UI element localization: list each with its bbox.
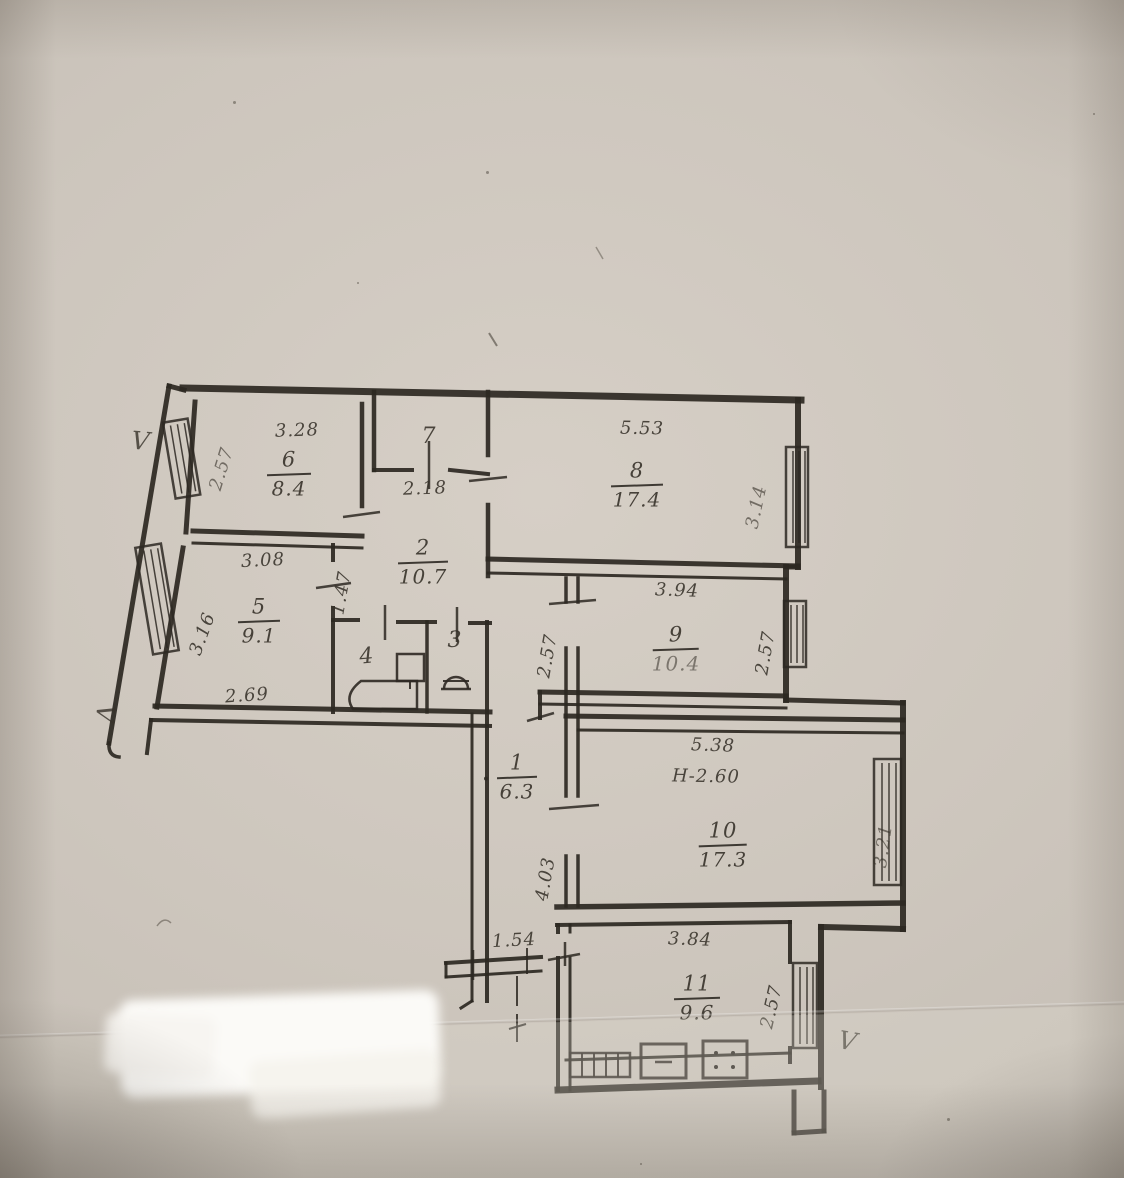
washbasin-icon xyxy=(397,654,424,689)
paper-speck xyxy=(1093,113,1095,115)
room-9-area: 10.4 xyxy=(652,654,701,674)
room-1-number: 1 xyxy=(510,753,524,774)
room-9-label: 9 10.4 xyxy=(652,625,701,674)
room-10-area: 17.3 xyxy=(699,850,748,870)
vent-mark-bottom-left: V xyxy=(92,703,119,724)
room-8-number: 8 xyxy=(630,461,644,482)
room-2-area: 10.7 xyxy=(399,567,448,587)
room-2-label: 2 10.7 xyxy=(398,538,448,587)
room-5-bottom-dim: 2.69 xyxy=(224,685,269,706)
room-7-number: 7 xyxy=(422,426,437,448)
room-6-number: 6 xyxy=(282,450,296,471)
room-9-number: 9 xyxy=(669,625,683,646)
room-8-area: 17.4 xyxy=(613,490,662,510)
room-11-number: 11 xyxy=(683,974,712,995)
room-3-number: 3 xyxy=(448,630,463,652)
scanned-floor-plan-photo: 3.28 6 8.4 2.57 7 2.18 5.53 8 17.4 3.14 … xyxy=(0,0,1124,1178)
room-7-below-dim: 2.18 xyxy=(403,479,448,499)
room-5-label: 5 9.1 xyxy=(238,597,280,646)
room-1-label: 1 6.3 xyxy=(497,753,537,802)
room-9-width-dim: 3.94 xyxy=(655,581,700,601)
room-10-label: 10 17.3 xyxy=(699,821,748,870)
room-6-area: 8.4 xyxy=(272,479,307,499)
room-5-width-dim: 3.08 xyxy=(241,551,286,571)
door-ticks xyxy=(316,441,599,1042)
room-10-width-dim: 5.38 xyxy=(691,736,736,756)
entry-width-dim: 1.54 xyxy=(492,931,537,951)
room-11-width-dim: 3.84 xyxy=(668,930,713,950)
room-2-number: 2 xyxy=(416,538,430,559)
room-6-label: 6 8.4 xyxy=(267,450,311,499)
vent-mark-top-left: V xyxy=(130,428,151,455)
room-4-number: 4 xyxy=(359,645,376,668)
paper-speck xyxy=(947,1118,950,1121)
room-5-area: 9.1 xyxy=(242,626,277,646)
paper-speck xyxy=(640,1163,642,1165)
paper-speck xyxy=(233,101,236,104)
toilet-icon xyxy=(441,677,471,689)
room-10-number: 10 xyxy=(709,821,738,842)
room-8-label: 8 17.4 xyxy=(611,461,663,510)
room-5-number: 5 xyxy=(252,597,266,618)
bathtub-icon xyxy=(349,681,417,709)
room-6-width-dim: 3.28 xyxy=(275,421,320,441)
room-10-ceiling-height: H-2.60 xyxy=(672,767,740,786)
paper-speck xyxy=(486,171,489,174)
paper-speck xyxy=(357,282,359,284)
room-1-area: 6.3 xyxy=(500,782,535,802)
room-8-width-dim: 5.53 xyxy=(620,420,664,439)
